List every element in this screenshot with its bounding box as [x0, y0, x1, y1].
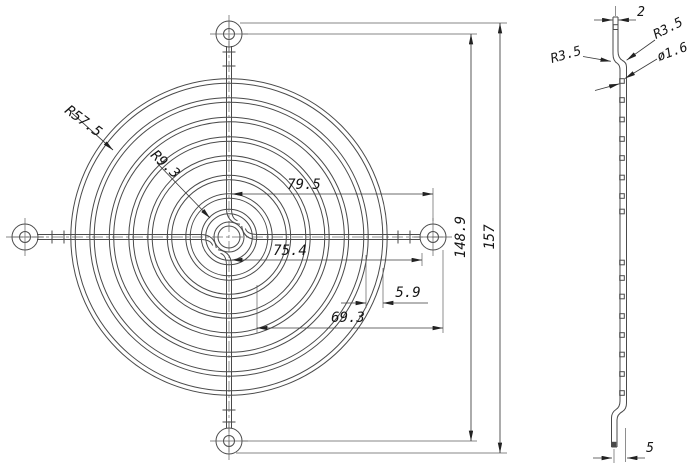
side-view: 2 R3.5 R3.5 ø1.6 5 [549, 5, 690, 463]
dim-thickness: 2 [594, 5, 645, 20]
dim-label-5: 5 [646, 441, 654, 456]
dim-label-r9-3: R9.3 [147, 147, 183, 182]
dim-ring-gap: 5.9 [341, 255, 428, 308]
dim-label-r3-5-left: R3.5 [549, 44, 583, 67]
dim-label-69-3: 69.3 [331, 310, 365, 326]
dim-label-r3-5-right: R3.5 [651, 15, 686, 43]
dim-bottom-offset: 5 [593, 428, 654, 463]
leader-bend-left: R3.5 [549, 44, 611, 67]
dim-label-5-9: 5.9 [395, 285, 420, 301]
technical-drawing-page: 79.5 75.4 5.9 69.3 148.9 [0, 0, 700, 475]
dim-label-2: 2 [637, 5, 645, 20]
center-lines [12, 21, 446, 454]
leader-radius-outer: R57.5 [62, 102, 113, 150]
mounting-tab-right [414, 218, 452, 256]
mounting-tab-left [6, 218, 44, 256]
dim-label-dia-1-6: ø1.6 [655, 40, 690, 65]
dim-top-half-width: 79.5 [232, 177, 433, 221]
front-view: 79.5 75.4 5.9 69.3 148.9 [6, 15, 507, 460]
dim-label-r57-5: R57.5 [62, 102, 105, 140]
dim-label-75-4: 75.4 [273, 243, 307, 259]
dim-hole-span: 148.9 [242, 34, 477, 441]
fan-guard-drawing: 79.5 75.4 5.9 69.3 148.9 [0, 0, 700, 475]
dim-label-148-9: 148.9 [453, 216, 469, 258]
leader-wire-diameter: ø1.6 [595, 40, 690, 91]
dim-label-79-5: 79.5 [287, 177, 321, 193]
dim-bottom-half-width: 75.4 [232, 243, 422, 266]
dim-label-157: 157 [482, 224, 498, 250]
